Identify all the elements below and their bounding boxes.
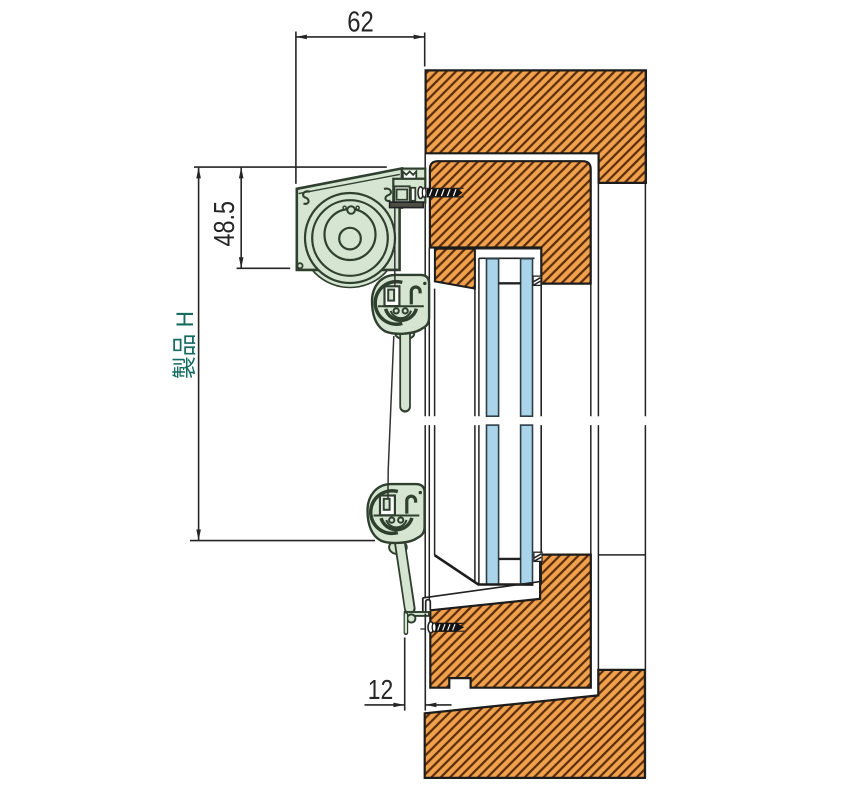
svg-text:62: 62 — [347, 6, 374, 38]
svg-text:12: 12 — [368, 674, 394, 705]
svg-text:製品 H: 製品 H — [171, 311, 199, 379]
svg-text:48.5: 48.5 — [209, 201, 241, 247]
